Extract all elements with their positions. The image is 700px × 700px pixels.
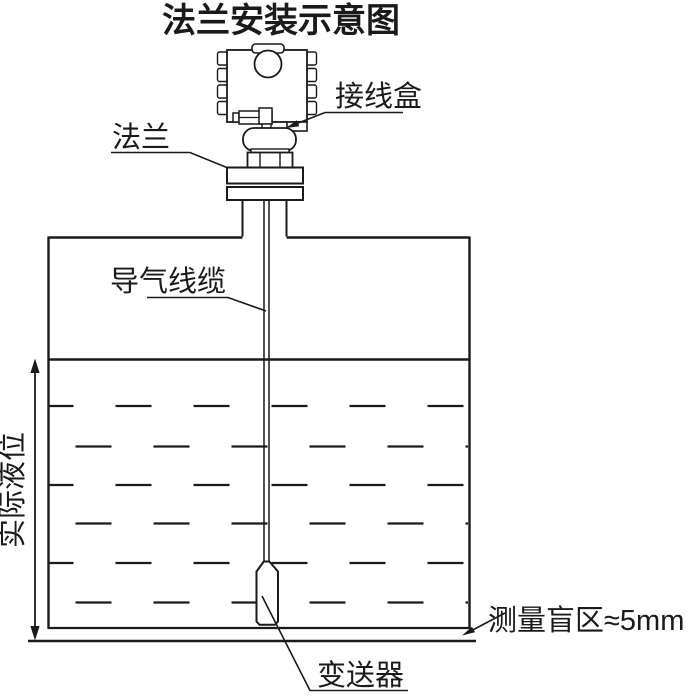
- label-transmitter: 变送器: [317, 659, 404, 692]
- label-junction-box: 接线盒: [335, 80, 422, 113]
- diagram-canvas: 法兰安装示意图: [0, 0, 700, 700]
- cable-line: [264, 200, 269, 562]
- installation-diagram: 法兰安装示意图: [0, 0, 700, 700]
- label-actual-level: 实际液位: [0, 432, 29, 548]
- head-dome: [255, 51, 282, 78]
- tank-outline: [28, 237, 476, 642]
- hex-nut: [248, 153, 293, 168]
- probe-transmitter: [257, 562, 279, 625]
- conduit-block: [233, 108, 272, 124]
- label-flange: 法兰: [112, 121, 170, 154]
- label-air-cable: 导气线缆: [110, 265, 226, 298]
- head-neck: [243, 128, 296, 151]
- level-dimension-arrow: [30, 359, 39, 641]
- diagram-title: 法兰安装示意图: [162, 2, 400, 40]
- flange-leader: [111, 153, 228, 169]
- flange-plates: [227, 168, 303, 201]
- label-blind-zone: 测量盲区≈5mm: [488, 604, 684, 637]
- air-cable-leader: [147, 298, 266, 312]
- head-left-ribs: [218, 52, 228, 115]
- head-right-ribs: [307, 52, 317, 115]
